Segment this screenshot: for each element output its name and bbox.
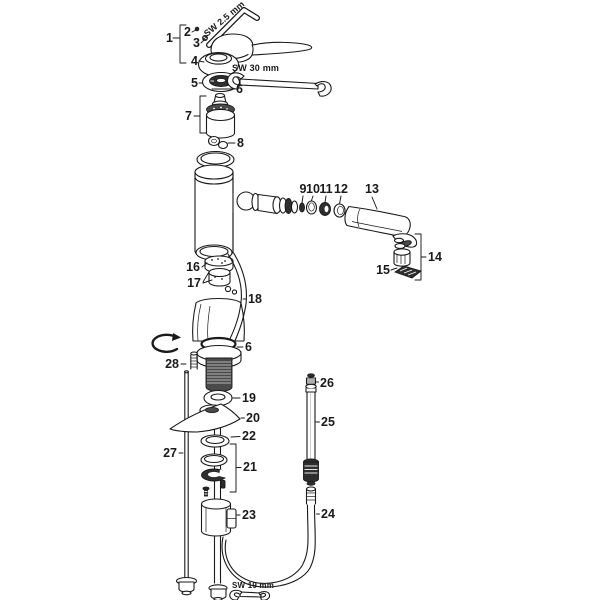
- callout-2: 2: [184, 25, 191, 39]
- circlip-icon: [153, 333, 181, 352]
- open-end-wrench-30-icon: SW 30 mm: [227, 63, 331, 96]
- callout-28: 28: [165, 357, 179, 371]
- hose-lower-end: [209, 536, 227, 600]
- callout-7: 7: [185, 109, 192, 123]
- faucet-exploded-view: SW 2.5 mm SW 30 mm: [0, 0, 600, 600]
- supply-pipe: [304, 374, 319, 486]
- spout-base: [193, 299, 245, 342]
- callout-17: 17: [187, 276, 201, 290]
- callout-3: 3: [193, 36, 200, 50]
- wrench-30-label: SW 30 mm: [232, 63, 279, 73]
- wrench-19-label: SW 19 mm: [232, 581, 274, 590]
- callout-8: 8: [237, 136, 244, 150]
- callout-20: 20: [246, 411, 260, 425]
- callout-24: 24: [321, 507, 335, 521]
- cartridge: [207, 94, 235, 138]
- washer-22: [201, 435, 229, 447]
- exploded-parts-diagram: SW 2.5 mm SW 30 mm: [0, 0, 600, 600]
- callout-4: 4: [191, 54, 198, 68]
- supply-hose-loop: [222, 487, 315, 587]
- shank-o-ring: [204, 391, 232, 406]
- callout-11: 11: [319, 182, 332, 196]
- threaded-shank: [206, 358, 232, 392]
- aerator-key-icon: [395, 266, 421, 278]
- callout-6-lower: 6: [245, 340, 252, 354]
- spray-head: [345, 207, 417, 248]
- small-seals-9-12: [300, 201, 346, 217]
- spout-branch: [237, 192, 298, 214]
- callout-10: 10: [306, 182, 320, 196]
- callout-23: 23: [242, 508, 256, 522]
- callout-19: 19: [242, 391, 256, 405]
- callout-16: 16: [186, 260, 200, 274]
- callout-27: 27: [163, 446, 177, 460]
- callout-1: 1: [166, 31, 173, 45]
- hose-weight: [202, 499, 237, 536]
- callout-15: 15: [376, 263, 390, 277]
- callout-14: 14: [428, 250, 442, 264]
- callout-18: 18: [248, 292, 262, 306]
- callout-6-upper: 6: [236, 82, 243, 96]
- callout-12: 12: [334, 182, 348, 196]
- stabiliser-plate: [170, 404, 240, 432]
- callout-25: 25: [321, 415, 335, 429]
- callout-13: 13: [365, 182, 379, 196]
- mounting-stud: [191, 352, 197, 369]
- callout-26: 26: [320, 376, 334, 390]
- callout-21: 21: [243, 460, 257, 474]
- mounting-rod: [177, 371, 197, 595]
- callout-22: 22: [242, 429, 256, 443]
- open-end-wrench-19-icon: SW 19 mm: [230, 581, 274, 600]
- callout-5: 5: [191, 76, 198, 90]
